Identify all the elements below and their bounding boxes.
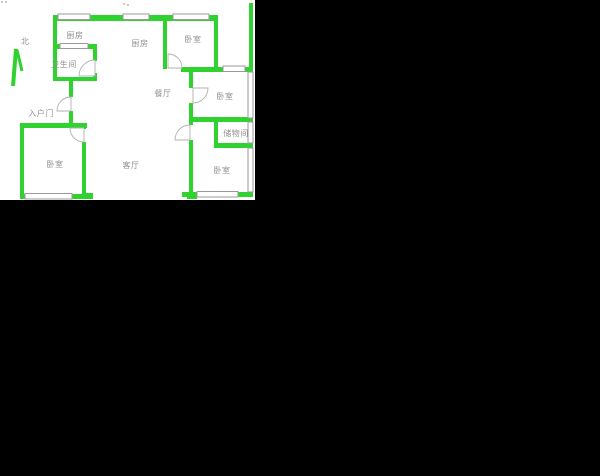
- bedroom-top-right-door-arc: [168, 54, 182, 68]
- room-label-dining: 餐厅: [155, 90, 172, 98]
- room-label-bathroom: 卫生间: [51, 61, 77, 69]
- room-label-storage: 储物间: [223, 130, 249, 138]
- bathroom-door-arc: [79, 60, 95, 76]
- floorplan-canvas: 北 厨房 厨房 卧室 卫生间 餐厅 卧室 入户门 储物间 卧室 客厅 卧室: [0, 0, 255, 200]
- bedroom-left-door-arc: [70, 128, 84, 142]
- room-label-bedroom-left: 卧室: [47, 161, 64, 169]
- living-room-door-arc: [175, 125, 190, 140]
- bedroom-mid-right-door-arc: [193, 88, 208, 103]
- north-arrow-icon: [13, 49, 22, 86]
- room-label-bedroom-top-right: 卧室: [185, 36, 202, 44]
- room-label-bedroom-mid-right: 卧室: [217, 93, 234, 101]
- room-label-living: 客厅: [123, 162, 140, 170]
- room-label-kitchen: 厨房: [132, 40, 149, 48]
- room-label-bedroom-bottom-right: 卧室: [214, 167, 231, 175]
- artifact-specks: [1, 1, 129, 6]
- north-label: 北: [21, 38, 29, 46]
- entry-door-arc: [57, 97, 71, 111]
- room-label-kitchen-upper: 厨房: [67, 32, 84, 40]
- room-label-entry-door: 入户门: [28, 110, 54, 118]
